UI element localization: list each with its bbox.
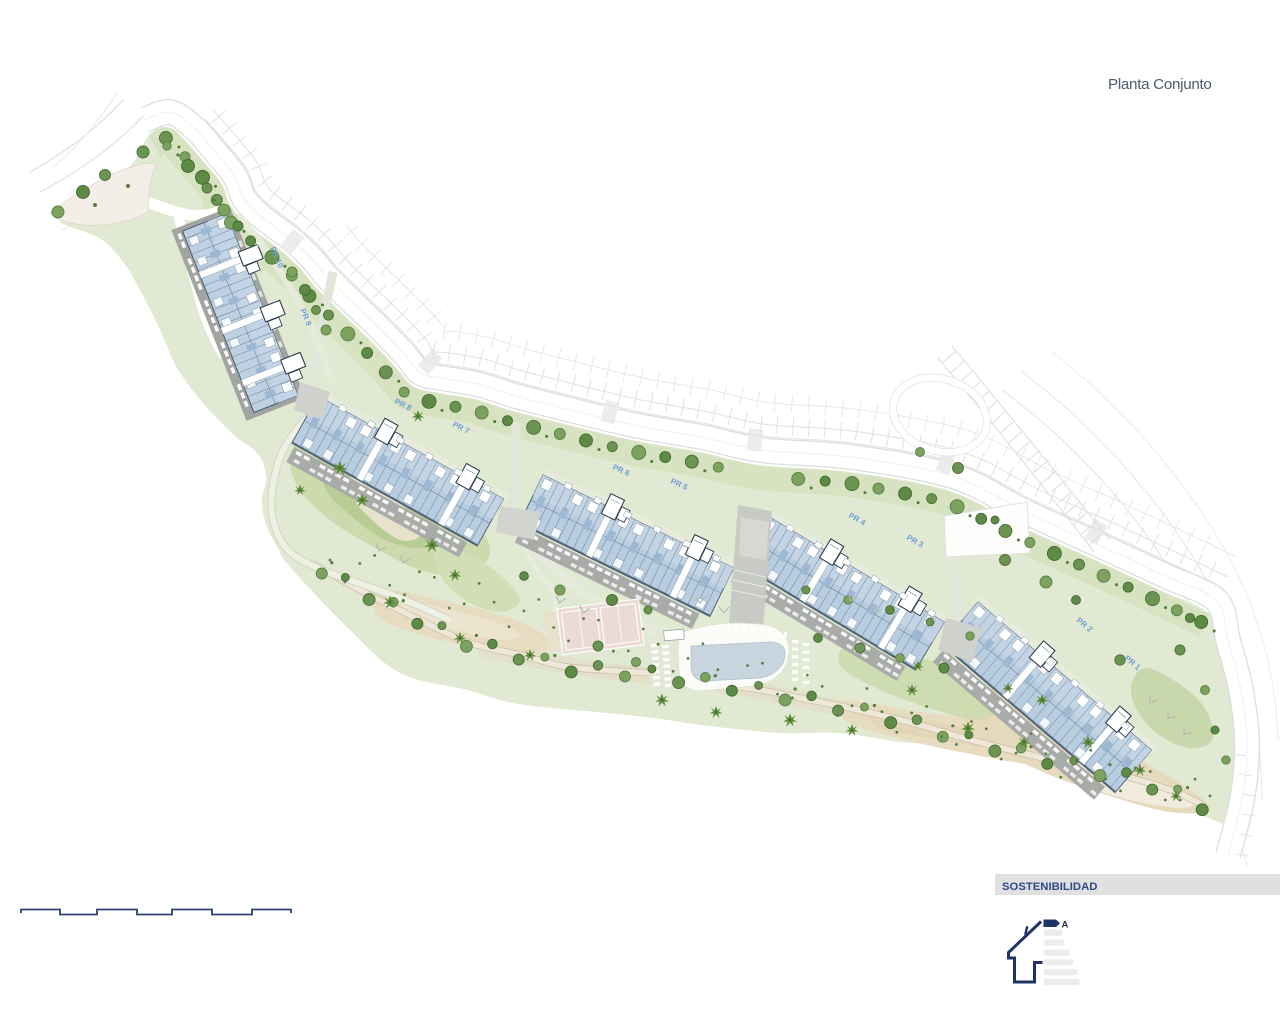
svg-text:A: A <box>1062 920 1069 931</box>
svg-text:SOSTENIBILIDAD: SOSTENIBILIDAD <box>1002 881 1097 893</box>
svg-text:Planta Conjunto: Planta Conjunto <box>1108 76 1212 93</box>
